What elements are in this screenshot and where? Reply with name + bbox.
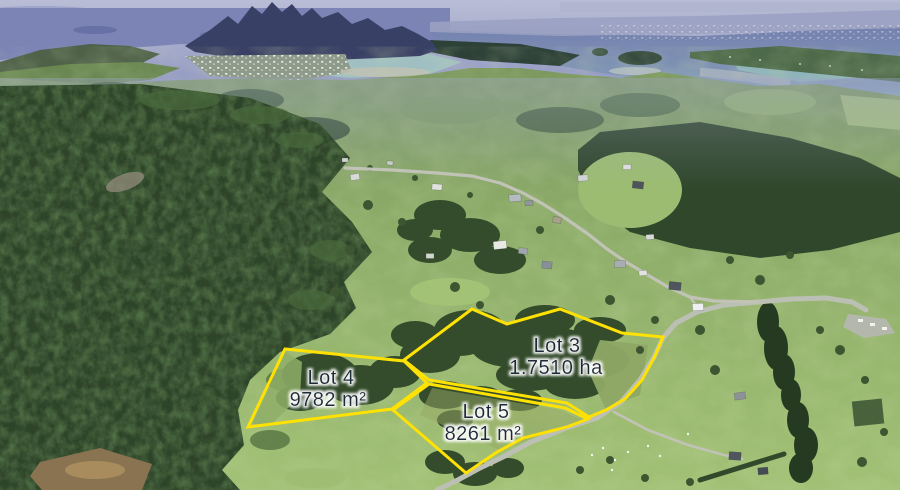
aerial-photo-canvas: Lot 3 1.7510 ha Lot 4 9782 m² Lot 5 8261… <box>0 0 900 490</box>
lot-3-label-area: 1.7510 ha <box>509 357 603 379</box>
house <box>578 175 588 182</box>
bare-earth <box>65 461 125 479</box>
lot-5-label-name: Lot 5 <box>463 401 510 423</box>
house <box>509 194 522 202</box>
house <box>432 184 442 191</box>
lot-4-label-name: Lot 4 <box>308 367 355 389</box>
house <box>623 165 631 170</box>
house <box>426 254 434 259</box>
house <box>632 181 644 189</box>
house <box>493 240 507 249</box>
beach <box>340 67 430 77</box>
house <box>692 303 703 311</box>
house <box>518 247 528 254</box>
horizon-haze <box>560 2 900 12</box>
house <box>553 216 562 223</box>
house <box>525 200 533 206</box>
harbour-island <box>618 51 662 65</box>
harbour-islet <box>592 48 608 56</box>
house <box>350 173 360 180</box>
clearing <box>285 468 345 488</box>
house <box>614 260 625 268</box>
house <box>729 452 742 461</box>
aerial-photo: Lot 3 1.7510 ha Lot 4 9782 m² Lot 5 8261… <box>0 0 900 490</box>
house <box>758 467 769 475</box>
lot-5-label-area: 8261 m² <box>445 423 522 445</box>
house <box>734 392 746 400</box>
island <box>73 26 117 34</box>
house <box>646 234 654 240</box>
house <box>387 161 393 166</box>
house <box>342 158 348 162</box>
house <box>639 270 647 276</box>
lot-3-label-name: Lot 3 <box>534 335 581 357</box>
house <box>542 261 553 269</box>
house <box>669 281 682 290</box>
lot-4-label-area: 9782 m² <box>290 389 367 411</box>
distant-settlement <box>600 24 900 40</box>
